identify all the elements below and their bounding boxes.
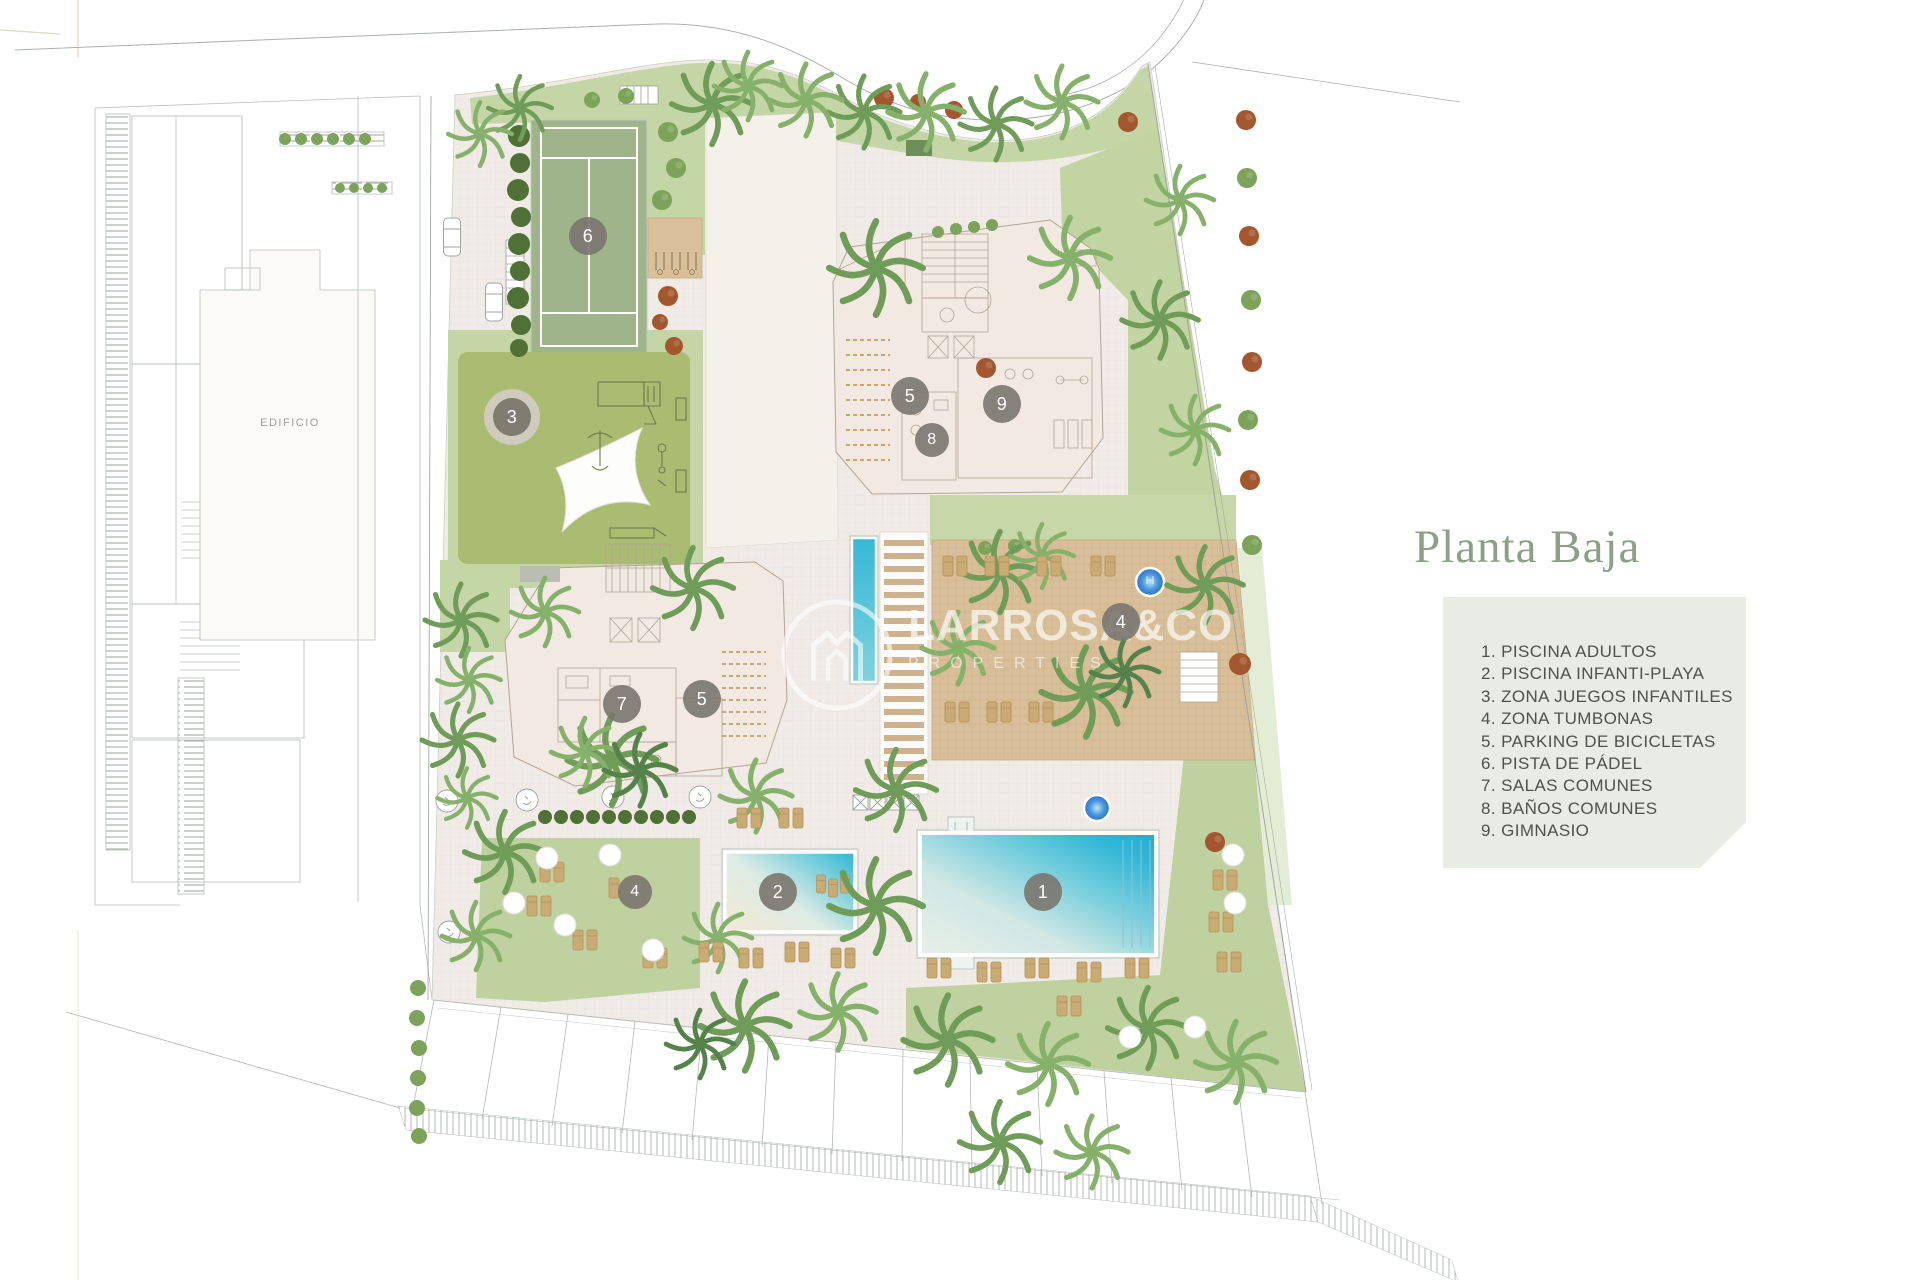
legend-item: 1. PISCINA ADULTOS: [1481, 641, 1726, 663]
marker-juegos-infantiles: 3: [493, 398, 531, 436]
site-plan-page: EDIFICIO LARROSA&CO PROPERTIES 6 3 5 9 8…: [0, 0, 1920, 1280]
bike-parking-deck: [648, 218, 702, 278]
neighbour-buildings: [95, 96, 432, 1000]
legend-item: 9. GIMNASIO: [1481, 820, 1726, 842]
legend-item: 4. ZONA TUMBONAS: [1481, 708, 1726, 730]
round-plunge-pool: [1084, 795, 1110, 821]
playground: [458, 352, 690, 564]
legend-item: 7. SALAS COMUNES: [1481, 775, 1726, 797]
legend-list: 1. PISCINA ADULTOS 2. PISCINA INFANTI-PL…: [1481, 641, 1726, 843]
marker-parking-bicicletas-norte: 5: [891, 377, 929, 415]
page-title: Planta Baja: [1414, 520, 1640, 574]
drawing-frame: [0, 0, 78, 1280]
legend-item: 2. PISCINA INFANTI-PLAYA: [1481, 663, 1726, 685]
lap-pool: [850, 536, 878, 684]
marker-piscina-infantil: 2: [759, 873, 797, 911]
marker-zona-tumbonas-deck: 4: [1102, 603, 1140, 641]
marker-zona-tumbonas-jardin: 4: [618, 875, 652, 909]
marker-salas-comunes: 7: [603, 685, 641, 723]
legend-item: 3. ZONA JUEGOS INFANTILES: [1481, 686, 1726, 708]
marker-piscina-adultos: 1: [1024, 873, 1062, 911]
edificio-label: EDIFICIO: [235, 417, 345, 429]
pergola-walkway: [880, 532, 928, 794]
central-walkway: [706, 112, 838, 548]
legend-item: 6. PISTA DE PÁDEL: [1481, 753, 1726, 775]
marker-parking-bicicletas-oeste: 5: [683, 680, 721, 718]
legend-item: 5. PARKING DE BICICLETAS: [1481, 731, 1726, 753]
legend-panel: 1. PISCINA ADULTOS 2. PISCINA INFANTI-PL…: [1443, 597, 1746, 868]
legend-item: 8. BAÑOS COMUNES: [1481, 798, 1726, 820]
marker-banos-comunes: 8: [915, 423, 949, 457]
marker-pista-padel: 6: [569, 217, 607, 255]
marker-gimnasio: 9: [983, 385, 1021, 423]
